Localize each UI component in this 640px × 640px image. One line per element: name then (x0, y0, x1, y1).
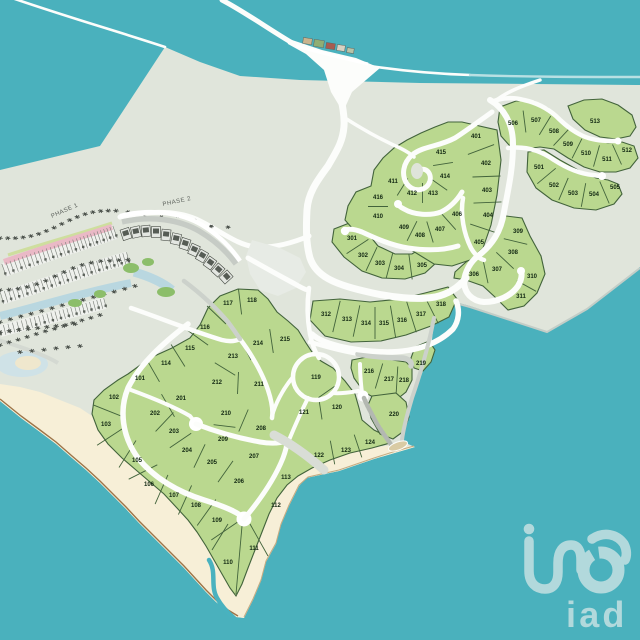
svg-text:211: 211 (254, 382, 264, 388)
svg-text:213: 213 (228, 354, 239, 360)
svg-text:412: 412 (407, 191, 418, 197)
svg-text:101: 101 (135, 376, 146, 382)
svg-text:108: 108 (191, 503, 202, 509)
svg-text:114: 114 (161, 361, 171, 367)
svg-text:414: 414 (440, 174, 451, 180)
svg-text:416: 416 (373, 195, 384, 201)
svg-text:306: 306 (469, 272, 480, 278)
svg-text:210: 210 (221, 411, 232, 417)
svg-text:312: 312 (321, 312, 332, 318)
svg-text:117: 117 (223, 301, 233, 307)
svg-text:212: 212 (212, 380, 223, 386)
svg-text:511: 511 (602, 157, 612, 163)
svg-text:503: 503 (568, 191, 579, 197)
svg-text:119: 119 (311, 375, 321, 381)
svg-text:403: 403 (482, 188, 493, 194)
svg-text:512: 512 (622, 148, 633, 154)
svg-text:123: 123 (341, 448, 352, 454)
svg-text:102: 102 (109, 395, 120, 401)
svg-text:303: 303 (375, 261, 386, 267)
svg-text:410: 410 (373, 214, 384, 220)
svg-text:201: 201 (176, 396, 187, 402)
svg-text:124: 124 (365, 440, 376, 446)
svg-text:218: 218 (399, 378, 410, 384)
svg-text:207: 207 (249, 454, 260, 460)
svg-text:510: 510 (581, 151, 592, 157)
svg-text:115: 115 (185, 346, 195, 352)
svg-text:404: 404 (483, 213, 494, 219)
svg-text:402: 402 (481, 161, 492, 167)
svg-text:iad: iad (566, 594, 628, 635)
svg-text:116: 116 (200, 325, 210, 331)
svg-text:507: 507 (531, 118, 542, 124)
svg-text:304: 304 (394, 266, 405, 272)
svg-text:501: 501 (534, 165, 545, 171)
svg-text:118: 118 (247, 298, 257, 304)
svg-text:219: 219 (416, 361, 427, 367)
svg-text:307: 307 (492, 267, 503, 273)
svg-text:204: 204 (182, 448, 193, 454)
svg-text:502: 502 (549, 183, 560, 189)
svg-text:112: 112 (271, 503, 281, 509)
svg-text:105: 105 (132, 458, 143, 464)
svg-text:122: 122 (314, 453, 325, 459)
svg-text:406: 406 (452, 212, 463, 218)
svg-text:505: 505 (610, 185, 621, 191)
svg-text:209: 209 (218, 437, 229, 443)
svg-text:506: 506 (508, 121, 519, 127)
svg-text:411: 411 (388, 179, 398, 185)
svg-text:216: 216 (364, 369, 375, 375)
svg-text:202: 202 (150, 411, 161, 417)
svg-text:109: 109 (212, 518, 223, 524)
svg-text:120: 120 (332, 405, 343, 411)
svg-text:214: 214 (253, 341, 264, 347)
svg-text:215: 215 (280, 337, 291, 343)
svg-text:401: 401 (471, 134, 482, 140)
svg-text:206: 206 (234, 479, 245, 485)
svg-text:316: 316 (397, 318, 408, 324)
svg-text:509: 509 (563, 142, 574, 148)
svg-text:318: 318 (436, 302, 447, 308)
svg-text:504: 504 (589, 192, 600, 198)
svg-text:317: 317 (416, 312, 427, 318)
svg-text:310: 310 (527, 274, 538, 280)
svg-text:203: 203 (169, 429, 180, 435)
svg-text:308: 308 (508, 250, 519, 256)
svg-text:311: 311 (516, 294, 526, 300)
svg-text:305: 305 (417, 263, 428, 269)
svg-text:217: 217 (384, 377, 395, 383)
svg-text:513: 513 (590, 119, 601, 125)
svg-text:111: 111 (249, 546, 259, 552)
svg-text:103: 103 (101, 422, 112, 428)
svg-text:110: 110 (223, 560, 233, 566)
svg-text:408: 408 (415, 233, 426, 239)
svg-text:107: 107 (169, 493, 180, 499)
svg-text:315: 315 (379, 321, 390, 327)
svg-text:205: 205 (207, 460, 218, 466)
svg-text:409: 409 (399, 225, 410, 231)
svg-text:415: 415 (436, 150, 447, 156)
svg-text:309: 309 (513, 229, 524, 235)
svg-text:113: 113 (281, 475, 291, 481)
svg-text:106: 106 (144, 482, 155, 488)
svg-text:314: 314 (361, 321, 372, 327)
svg-text:121: 121 (299, 410, 310, 416)
svg-text:208: 208 (256, 426, 267, 432)
svg-text:302: 302 (358, 253, 369, 259)
svg-text:313: 313 (342, 317, 353, 323)
svg-text:220: 220 (389, 412, 400, 418)
svg-text:405: 405 (474, 240, 485, 246)
svg-text:413: 413 (428, 191, 439, 197)
svg-text:508: 508 (549, 129, 560, 135)
svg-text:407: 407 (435, 227, 446, 233)
svg-text:301: 301 (347, 236, 358, 242)
